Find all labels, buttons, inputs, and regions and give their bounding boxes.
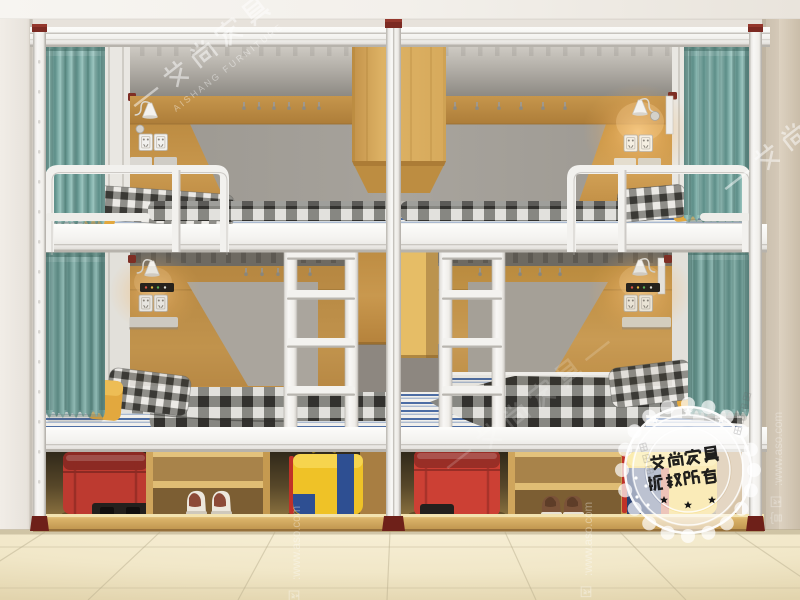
svg-text::www.aso.com: :www.aso.com	[583, 502, 595, 576]
svg-text::www.aso.com: :www.aso.com	[291, 506, 303, 580]
svg-text::www.aso.com: :www.aso.com	[773, 412, 785, 486]
